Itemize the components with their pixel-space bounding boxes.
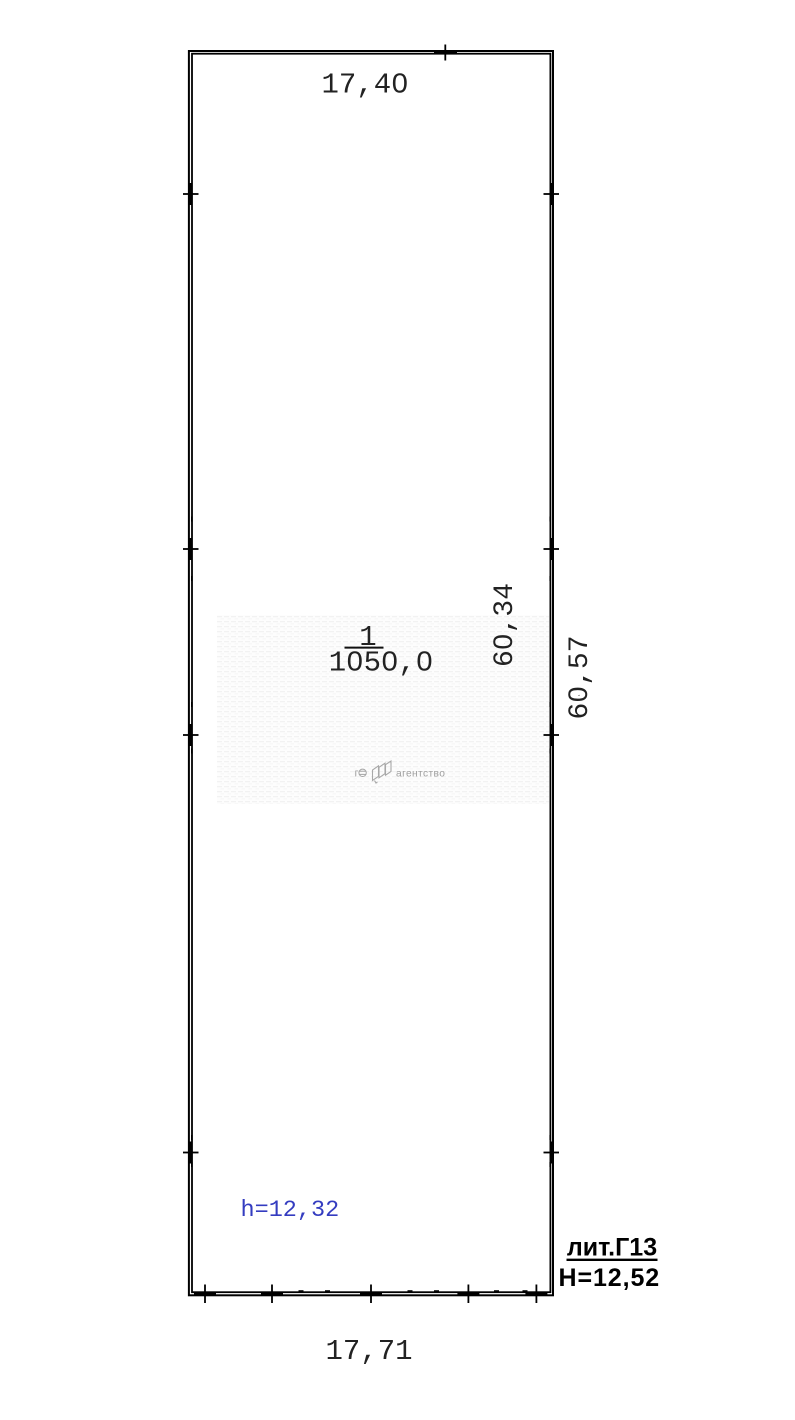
- svg-text:агентство: агентство: [396, 768, 445, 779]
- svg-text:60,57: 60,57: [565, 635, 596, 719]
- svg-text:60,34: 60,34: [490, 583, 521, 667]
- svg-text:лит.Г13: лит.Г13: [567, 1233, 657, 1261]
- svg-text:17,40: 17,40: [321, 69, 408, 102]
- svg-text:1050,0: 1050,0: [329, 647, 433, 680]
- svg-text:Н=12,52: Н=12,52: [559, 1264, 661, 1292]
- svg-text:г: г: [355, 768, 359, 780]
- svg-text:h=12,32: h=12,32: [241, 1197, 340, 1224]
- svg-text:17,71: 17,71: [325, 1335, 412, 1368]
